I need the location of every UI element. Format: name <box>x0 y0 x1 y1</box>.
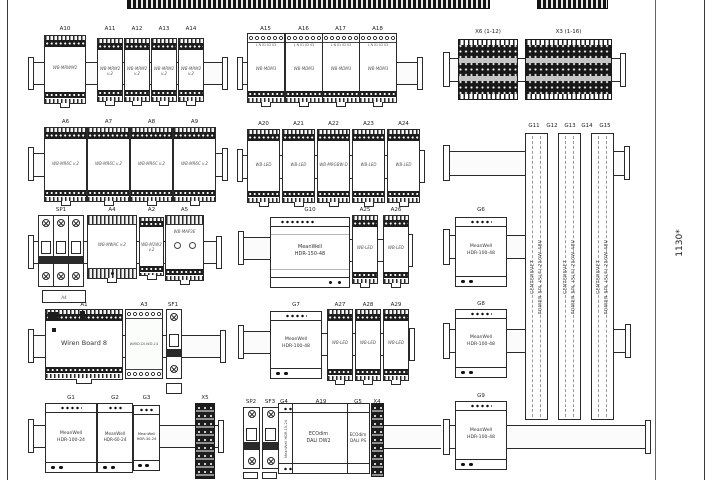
vent-dots-icon <box>285 314 307 318</box>
terminal-band-icon <box>88 190 129 201</box>
terminal-group-x6-label: X6 (1-12) <box>458 29 518 36</box>
device-g5-model: DALI PS <box>347 438 369 444</box>
rail-clip-icon <box>373 102 383 107</box>
terminal-strip-x4 <box>371 403 384 477</box>
device-a13: WB-MRM2 v.2 <box>151 38 177 102</box>
divider <box>456 410 506 411</box>
vent-dots-icon <box>139 408 154 412</box>
ref-label-a17: A17 <box>322 26 359 33</box>
power-profile-slat: CENTERSVET POWER SPL (SLF) 250W 48V <box>591 133 614 420</box>
device-a21-model: WB-LED <box>284 163 313 168</box>
terminal-row-icon <box>459 81 517 94</box>
rail-end-plate <box>625 324 631 358</box>
device-a9: WB-MR6C v.2 <box>173 127 216 202</box>
profile-text-spec: POWER SPL (SLF) 250W 48V <box>571 239 576 314</box>
rail-end-plate <box>417 57 423 90</box>
ref-label-a3: A3 <box>125 302 163 309</box>
device-a17-terminals: L N 01 02 03 <box>324 43 358 48</box>
toggle-icon <box>41 241 51 254</box>
terminal-band-icon <box>384 216 408 227</box>
psu-g1-model: HDR-100-24 <box>46 438 96 445</box>
screw-icon <box>329 281 333 285</box>
rail-clip-icon <box>104 201 114 206</box>
toggle-icon <box>246 428 257 441</box>
device-a3: WBIO-DI-WD-14 <box>125 309 163 379</box>
rail-slot-icon <box>244 442 259 450</box>
ref-label-a20: A20 <box>247 121 280 128</box>
device-a26: WB-LED <box>383 215 409 284</box>
cabinet-layout-drawing: 1130* A10 WB-MRWM2 A11 A12 A13 A14 WB-MR… <box>0 0 720 480</box>
psu-g1: MeanWell HDR-100-24 <box>45 403 97 473</box>
top-terminal-strip-short <box>537 0 608 9</box>
status-led-icon <box>111 272 114 275</box>
terminal-band-icon <box>328 369 352 380</box>
rail-end-plate <box>238 325 244 359</box>
psu-g7-brand: MeanWell <box>271 337 321 344</box>
screw-terminals-icon <box>248 34 284 43</box>
divider <box>271 368 321 369</box>
device-a25: WB-LED <box>352 215 378 284</box>
screw-terminals-icon <box>286 34 322 43</box>
divider <box>271 226 349 227</box>
terminal-band-icon <box>384 310 408 321</box>
toggle-icon <box>56 241 66 254</box>
screw-icon <box>72 272 80 280</box>
profile-label-g15: G15 <box>595 123 615 130</box>
rail-clip-icon <box>259 202 269 207</box>
terminal-comb-icon <box>166 216 203 225</box>
terminal-band-icon <box>388 130 419 141</box>
terminal-band-icon <box>45 190 86 201</box>
note-box <box>243 472 258 479</box>
ref-label-g6: G6 <box>455 207 507 214</box>
device-a4: WB-MWAC v.2 <box>87 215 137 279</box>
screw-icon <box>51 466 55 470</box>
profile-label-g12: G12 <box>542 123 562 130</box>
psu-g3-title: MeanWell HDR-30-24 <box>134 432 159 442</box>
ref-label-a5: A5 <box>165 207 204 214</box>
rail-clip-icon <box>363 380 373 385</box>
status-led-icon <box>52 328 56 332</box>
device-a11-model: WB-MRM2 v.2 <box>99 67 121 76</box>
rail-end-plate <box>222 148 228 181</box>
device-a17: L N 01 02 03 WB-MDM3 <box>322 33 360 103</box>
ref-label-g1: G1 <box>45 395 97 402</box>
rail-end-plate <box>218 420 224 453</box>
psu-g7: MeanWell HDR-100-48 <box>270 311 322 379</box>
ref-label-a8: A8 <box>130 119 173 126</box>
note-box <box>262 472 277 479</box>
dimension-extension-line <box>655 0 656 480</box>
screw-terminals-icon <box>323 34 359 43</box>
connector-icon <box>48 312 58 320</box>
psu-g8-model: HDR-100-48 <box>456 342 506 349</box>
device-a19-model: DALI DW2 <box>292 439 345 446</box>
ref-label-a24: A24 <box>387 121 420 128</box>
rail-clip-icon <box>180 280 190 285</box>
breaker-pole <box>38 215 54 287</box>
device-a28: WB-LED <box>355 309 381 381</box>
rail-end-plate <box>443 229 450 265</box>
device-a15: L N 01 02 03 WB-MDM3 <box>247 33 285 103</box>
terminal-block-x3 <box>525 39 612 100</box>
screw-icon <box>111 466 115 470</box>
rail-end-plate <box>645 420 651 454</box>
device-a12: WB-MRM2 v.2 <box>124 38 150 102</box>
ref-label-a25: A25 <box>352 207 378 214</box>
screw-icon <box>57 219 65 227</box>
device-a10-model: WB-MRWM2 <box>46 66 84 71</box>
ref-label-sp2: SP2 <box>242 399 260 406</box>
screw-icon <box>469 371 473 375</box>
device-a16: L N 01 02 03 WB-MDM3 <box>285 33 323 103</box>
breaker-sp1 <box>38 215 85 287</box>
rail-end-plate <box>443 52 450 87</box>
psu-g10: MeanWell HDR-150-48 <box>270 217 350 288</box>
terminal-band-icon <box>46 367 122 379</box>
rail-end-plate <box>443 323 450 359</box>
screw-icon <box>461 371 465 375</box>
screw-icon <box>267 457 275 465</box>
screw-icon <box>59 466 63 470</box>
ref-label-a27: A27 <box>327 302 353 309</box>
rail-clip-icon <box>159 101 169 106</box>
psu-g2-model: HDR-60-24 <box>98 437 132 443</box>
rail-clip-icon <box>360 283 370 288</box>
rail-clip-icon <box>186 101 196 106</box>
terminal-band-icon <box>125 39 149 50</box>
rail-clip-icon <box>60 103 70 108</box>
ct-terminal-icon <box>174 242 181 249</box>
rail-clip-icon <box>391 380 401 385</box>
terminal-band-icon <box>166 269 203 280</box>
rail-slot-icon <box>54 256 68 264</box>
terminal-band-icon <box>98 90 122 101</box>
rail-end-plate <box>237 149 243 182</box>
psu-g8-brand: MeanWell <box>456 335 506 342</box>
device-a15-model: WB-MDM3 <box>249 67 283 72</box>
device-a21: WB-LED <box>282 129 315 203</box>
din-rail <box>384 425 441 449</box>
screw-icon <box>170 365 178 373</box>
device-a29-model: WB-LED <box>385 341 407 346</box>
ref-label-a15: A15 <box>247 26 284 33</box>
din-rail <box>244 331 272 354</box>
rail-end-plate <box>220 330 226 363</box>
terminal-band-icon <box>286 91 322 102</box>
dimension-label: 1130* <box>675 223 685 263</box>
screw-icon <box>461 280 465 284</box>
divider <box>271 234 349 235</box>
rail-clip-icon <box>335 380 345 385</box>
vent-dots-icon <box>280 220 314 224</box>
psu-g10-model: HDR-150-48 <box>271 251 349 258</box>
psu-g6: MeanWell HDR-100-48 <box>455 217 507 287</box>
screw-icon <box>103 466 107 470</box>
rail-end-plate <box>216 236 222 269</box>
terminal-band-icon <box>318 191 349 202</box>
screw-icon <box>461 463 465 467</box>
rail-clip-icon <box>107 278 117 283</box>
psu-g2: MeanWell HDR-60-24 <box>97 403 133 473</box>
ref-label-a11: A11 <box>97 26 123 33</box>
screw-icon <box>57 272 65 280</box>
profile-label-g14: G14 <box>577 123 597 130</box>
device-g5-title: ECOdim DALI PS <box>347 432 369 444</box>
device-a5-model: WB-MAP3E <box>167 230 202 235</box>
rail-slot-icon <box>263 442 278 450</box>
ref-label-a7: A7 <box>87 119 130 126</box>
terminal-row-icon <box>526 45 611 58</box>
terminal-band-icon <box>356 369 380 380</box>
profile-label-g11: G11 <box>524 123 544 130</box>
terminal-band-icon <box>45 128 86 139</box>
device-a14: WB-MRM2 v.2 <box>178 38 204 102</box>
device-a16-model: WB-MDM3 <box>287 67 321 72</box>
ref-label-a29: A29 <box>383 302 409 309</box>
device-a22: WB-MRGBW-D <box>317 129 350 203</box>
profile-text-brand: CENTERSVET <box>596 259 601 293</box>
frame-border-right <box>704 0 705 480</box>
device-a8-model: WB-MR6C v.2 <box>132 162 171 167</box>
psu-g9-brand: MeanWell <box>456 428 506 435</box>
screw-icon <box>469 463 473 467</box>
screw-terminals-icon <box>126 369 162 378</box>
screw-icon <box>248 410 256 418</box>
device-a23: WB-LED <box>352 129 385 203</box>
psu-g3: MeanWell HDR-30-24 <box>133 405 160 471</box>
rail-clip-icon <box>61 201 71 206</box>
ref-label-a18: A18 <box>359 26 396 33</box>
terminal-row-icon <box>459 45 517 58</box>
device-a25-model: WB-LED <box>354 246 376 251</box>
profile-text-spec: POWER SPL (SLF) 250W 48V <box>604 239 609 314</box>
screw-icon <box>72 219 80 227</box>
psu-g1-brand: MeanWell <box>46 431 96 438</box>
screw-icon <box>284 372 288 376</box>
ref-label-a14: A14 <box>178 26 204 33</box>
terminal-band-icon <box>384 272 408 283</box>
ref-label-a19: A19 <box>298 399 344 406</box>
terminal-band-icon <box>248 191 279 202</box>
psu-g7-model: HDR-100-48 <box>271 344 321 351</box>
psu-g1-title: MeanWell HDR-100-24 <box>46 431 96 444</box>
din-rail <box>507 329 525 353</box>
breaker-pole <box>53 215 69 287</box>
rail-end-plate <box>620 53 626 87</box>
power-profile-slat: CENTERSVET POWER SPL (SLF) 250W 48V <box>558 133 581 420</box>
divider <box>271 269 349 270</box>
terminal-band-icon <box>248 130 279 141</box>
frame-border-left <box>7 0 8 480</box>
divider <box>271 320 321 321</box>
psu-g3-model: HDR-30-24 <box>134 437 159 442</box>
din-rail <box>244 237 272 260</box>
device-a20-model: WB-LED <box>249 163 278 168</box>
breaker-sf3 <box>262 407 279 469</box>
divider <box>456 226 506 227</box>
rail-clip-icon <box>299 102 309 107</box>
rail-slot-icon <box>69 256 83 264</box>
device-a9-model: WB-MR6C v.2 <box>175 162 214 167</box>
device-a14-model: WB-MRM2 v.2 <box>180 67 202 76</box>
divider <box>98 412 132 413</box>
rail-clip-icon <box>147 275 157 280</box>
power-profile-slat: CENTERSVET POWER SPL (SLF) 250W 48V <box>525 133 548 420</box>
profile-text-brand: CENTERSVET <box>530 259 535 293</box>
divider <box>98 462 132 463</box>
device-a29: WB-LED <box>383 309 409 381</box>
device-a27: WB-LED <box>327 309 353 381</box>
ref-label-g10: G10 <box>270 207 350 214</box>
breaker-sf1 <box>166 309 182 379</box>
rail-end-plate <box>28 147 34 181</box>
toggle-icon <box>265 428 276 441</box>
divider <box>456 367 506 368</box>
device-a7-model: WB-MR6C v.2 <box>89 162 128 167</box>
rail-end-plate <box>28 235 34 269</box>
rail-end-plate <box>28 329 34 363</box>
rail-end-plate <box>238 231 244 265</box>
terminal-band-icon <box>328 310 352 321</box>
rail-clip-icon <box>190 201 200 206</box>
terminal-band-icon <box>353 272 377 283</box>
connector-icon <box>80 311 85 321</box>
ref-label-a2: A2 <box>139 207 164 214</box>
device-a28-model: WB-LED <box>357 341 379 346</box>
ref-label-a1: A1 <box>45 302 123 309</box>
screw-icon <box>42 272 50 280</box>
ref-label-g9: G9 <box>455 393 507 400</box>
vent-dots-icon <box>470 220 492 224</box>
screw-icon <box>170 313 178 321</box>
divider <box>456 276 506 277</box>
terminal-comb-icon <box>459 94 517 99</box>
device-a2: WB-M1W2 v.2 <box>139 217 164 276</box>
screw-icon <box>145 464 149 468</box>
device-a8: WB-MR6C v.2 <box>130 127 173 202</box>
din-rail <box>507 235 525 259</box>
ref-label-a26: A26 <box>383 207 409 214</box>
terminal-band-icon <box>283 130 314 141</box>
psu-g9-title: MeanWell HDR-100-48 <box>456 428 506 441</box>
psu-g9: MeanWell HDR-100-48 <box>455 401 507 470</box>
psu-g8: MeanWell HDR-100-48 <box>455 309 507 378</box>
terminal-strip-x5-label: X5 <box>193 395 217 402</box>
terminal-strip-x5 <box>195 403 215 479</box>
rail-clip-icon <box>132 101 142 106</box>
terminal-strip-x4-label: X4 <box>368 399 386 406</box>
screw-icon <box>276 372 280 376</box>
top-terminal-strip-long <box>127 0 490 9</box>
terminal-comb-icon <box>88 216 136 225</box>
profile-text-brand: CENTERSVET <box>563 259 568 293</box>
divider <box>134 414 159 415</box>
psu-g7-title: MeanWell HDR-100-48 <box>271 337 321 350</box>
toggle-icon <box>71 241 81 254</box>
terminal-band-icon <box>152 39 176 50</box>
terminal-band-icon <box>131 190 172 201</box>
device-a22-model: WB-MRGBW-D <box>319 163 348 168</box>
screw-icon <box>42 219 50 227</box>
rail-end-plate <box>28 57 34 90</box>
terminal-band-icon <box>140 266 163 275</box>
terminal-block-x6 <box>458 39 518 100</box>
ref-label-a13: A13 <box>151 26 177 33</box>
rail-end-plate <box>443 419 450 455</box>
din-rail <box>450 151 528 176</box>
terminal-band-icon <box>140 218 163 227</box>
terminal-band-icon <box>131 128 172 139</box>
terminal-band-icon <box>174 190 215 201</box>
ref-label-sf1: SF1 <box>164 302 182 309</box>
screw-icon <box>469 280 473 284</box>
psu-g8-title: MeanWell HDR-100-48 <box>456 335 506 348</box>
rail-clip-icon <box>105 101 115 106</box>
psu-g2-title: MeanWell HDR-60-24 <box>98 431 132 443</box>
ref-label-a6: A6 <box>44 119 87 126</box>
breaker-pole <box>68 215 84 287</box>
psu-g4-model: MeanWell HDR-15-24 <box>284 419 288 457</box>
rail-end-plate <box>222 57 228 90</box>
terminal-row-icon <box>526 63 611 76</box>
psu-g6-title: MeanWell HDR-100-48 <box>456 244 506 257</box>
device-a2-model: WB-M1W2 v.2 <box>141 243 162 252</box>
ref-label-a16: A16 <box>285 26 322 33</box>
rail-clip-icon <box>76 379 92 384</box>
terminal-band-icon <box>174 128 215 139</box>
psu-g6-model: HDR-100-48 <box>456 251 506 258</box>
terminal-band-icon <box>45 92 85 103</box>
profile-text-spec: POWER SPL (SLF) 250W 48V <box>538 239 543 314</box>
divider <box>271 277 349 278</box>
terminal-band-icon <box>353 191 384 202</box>
screw-icon <box>267 410 275 418</box>
ref-label-a22: A22 <box>317 121 350 128</box>
device-a17-model: WB-MDM3 <box>324 67 358 72</box>
device-a18-terminals: L N 01 02 03 <box>361 43 395 48</box>
ref-label-a9: A9 <box>173 119 216 126</box>
device-a18-model: WB-MDM3 <box>361 67 395 72</box>
vent-dots-icon <box>470 312 492 316</box>
screw-icon <box>248 457 256 465</box>
ref-label-sp1: SP1 <box>38 207 84 214</box>
ct-terminal-icon <box>189 242 196 249</box>
terminal-band-icon <box>152 90 176 101</box>
divider <box>46 462 96 463</box>
terminal-band-icon <box>353 130 384 141</box>
divider <box>456 459 506 460</box>
divider <box>456 318 506 319</box>
dali-module-group: MeanWell HDR-15-24 ECOdim DALI DW2 ECOdi… <box>278 403 370 474</box>
terminal-band-icon <box>318 130 349 141</box>
terminal-band-icon <box>98 39 122 50</box>
device-a23-model: WB-LED <box>354 163 383 168</box>
screw-terminals-icon <box>360 34 396 43</box>
terminal-band-icon <box>248 91 284 102</box>
terminal-band-icon <box>125 90 149 101</box>
terminal-row-icon <box>459 63 517 76</box>
divider <box>46 412 96 413</box>
psu-g6-brand: MeanWell <box>456 244 506 251</box>
device-a26-model: WB-LED <box>385 246 407 251</box>
terminal-band-icon <box>45 36 85 47</box>
terminal-band-icon <box>323 91 359 102</box>
rail-clip-icon <box>391 283 401 288</box>
ref-label-g8: G8 <box>455 301 507 308</box>
rail-slot-icon <box>39 256 53 264</box>
device-a19-brand: ECOdim <box>292 432 345 439</box>
